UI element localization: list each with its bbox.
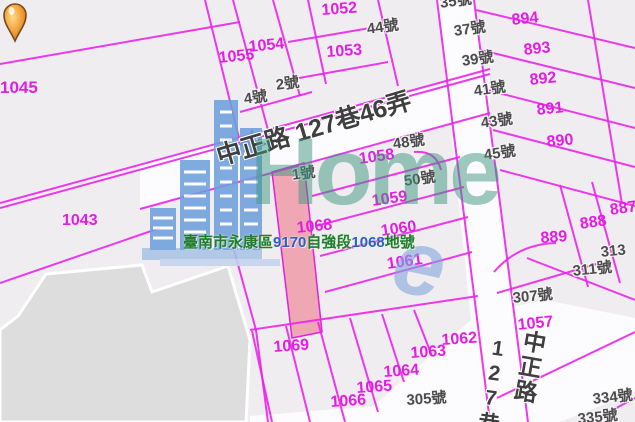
parcel-number-label: 887 xyxy=(609,199,635,219)
site-address-segment: 1068 xyxy=(351,234,384,251)
parcel-number-label: 1062 xyxy=(441,331,478,349)
parcel-number-label: 889 xyxy=(540,229,568,247)
parcel-number-label: 890 xyxy=(546,132,574,151)
site-address-segment: 臺南市永康區 xyxy=(183,234,273,251)
parcel-number-label: 1043 xyxy=(62,213,98,229)
house-number-label: 48號 xyxy=(392,133,425,152)
site-address-segment: 自強段 xyxy=(306,234,351,251)
house-number-label: 43號 xyxy=(480,112,513,131)
site-address-segment: 地號 xyxy=(385,234,415,251)
house-number-label: 311號 xyxy=(572,260,613,279)
parcel-number-label: 1066 xyxy=(330,393,367,411)
house-number-label: 305號 xyxy=(406,390,447,408)
house-number-label: 313 xyxy=(600,242,626,260)
house-number-label: 44號 xyxy=(366,18,399,37)
house-number-label: 39號 xyxy=(461,50,494,69)
house-number-label: 2號 xyxy=(275,75,300,93)
parcel-number-label: 891 xyxy=(536,100,564,119)
parcel-number-label: 1069 xyxy=(273,338,310,356)
house-number-label: 37號 xyxy=(453,20,486,39)
building-footprint xyxy=(0,265,250,422)
house-number-label: 307號 xyxy=(512,287,553,306)
house-number-label: 334號 xyxy=(592,388,633,407)
house-number-label: 335號 xyxy=(577,408,618,422)
parcel-number-label: 1063 xyxy=(410,344,447,362)
house-number-label: 41號 xyxy=(473,80,506,99)
house-number-label: 45號 xyxy=(483,144,516,163)
parcel-number-label: 1053 xyxy=(326,43,363,61)
parcel-number-label: 892 xyxy=(529,70,557,89)
house-number-label: 50號 xyxy=(403,170,436,189)
house-number-label: 4號 xyxy=(243,89,268,107)
site-address-label: 臺南市永康區9170自強段1068地號 xyxy=(183,231,415,252)
cadastral-map[interactable]: 1045104310521053105410558948938928918908… xyxy=(0,0,635,422)
parcel-number-label: 894 xyxy=(511,10,539,29)
parcel-number-label: 893 xyxy=(523,40,551,59)
parcel-number-label: 1045 xyxy=(0,79,38,96)
map-pin-icon[interactable] xyxy=(0,0,32,46)
parcel-number-label: 1052 xyxy=(321,1,358,19)
site-address-segment: 9170 xyxy=(273,234,306,251)
house-number-label: 1號 xyxy=(291,165,316,183)
